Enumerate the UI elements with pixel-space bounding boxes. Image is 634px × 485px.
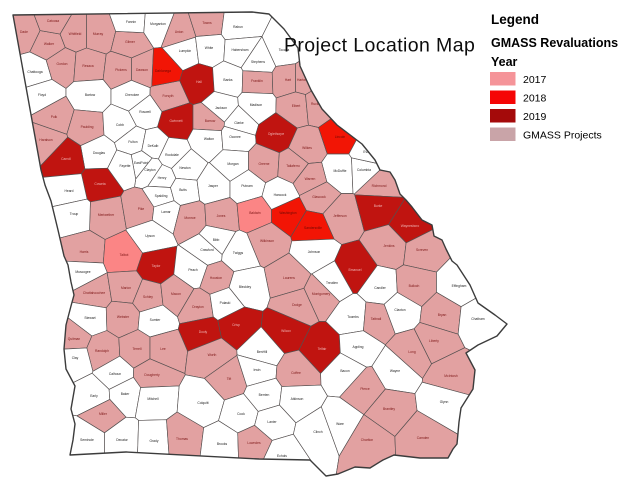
svg-text:Montgomery: Montgomery xyxy=(312,292,331,296)
svg-text:Peach: Peach xyxy=(188,268,198,272)
svg-text:Grady: Grady xyxy=(150,439,159,443)
svg-text:Miller: Miller xyxy=(99,412,108,416)
svg-text:Meriwether: Meriwether xyxy=(98,213,115,217)
svg-text:2017: 2017 xyxy=(523,74,547,86)
svg-text:Clay: Clay xyxy=(72,356,79,360)
svg-text:Jones: Jones xyxy=(217,214,226,218)
svg-text:Lowndes: Lowndes xyxy=(247,441,261,445)
svg-text:Sumter: Sumter xyxy=(150,318,162,322)
svg-text:Greene: Greene xyxy=(259,162,270,166)
svg-text:Webster: Webster xyxy=(117,315,130,319)
svg-text:Washington: Washington xyxy=(279,211,296,215)
svg-text:Gordon: Gordon xyxy=(57,62,68,66)
svg-text:Resaca: Resaca xyxy=(82,64,93,68)
svg-text:Floyd: Floyd xyxy=(38,93,46,97)
svg-text:Lee: Lee xyxy=(160,347,166,351)
svg-text:Monroe: Monroe xyxy=(184,216,195,220)
svg-text:Fannin: Fannin xyxy=(126,20,136,24)
svg-text:Liberty: Liberty xyxy=(429,339,439,343)
svg-text:Jackson: Jackson xyxy=(215,106,227,110)
svg-text:Camden: Camden xyxy=(417,436,430,440)
svg-text:BenHill: BenHill xyxy=(257,350,268,354)
svg-text:White: White xyxy=(205,46,214,50)
svg-text:Laurens: Laurens xyxy=(283,276,295,280)
svg-text:Roswell: Roswell xyxy=(139,110,151,114)
svg-text:Irwin: Irwin xyxy=(254,368,261,372)
svg-text:Lincoln: Lincoln xyxy=(335,135,346,139)
svg-text:Morganton: Morganton xyxy=(150,22,166,26)
svg-text:Madison: Madison xyxy=(250,103,263,107)
svg-text:Franklin: Franklin xyxy=(251,79,263,83)
svg-text:Carroll: Carroll xyxy=(61,157,71,161)
svg-text:Troup: Troup xyxy=(70,212,79,216)
svg-text:McDuffie: McDuffie xyxy=(334,169,347,173)
svg-text:Coweta: Coweta xyxy=(94,182,105,186)
svg-text:Clarke: Clarke xyxy=(234,121,244,125)
svg-text:Walton: Walton xyxy=(204,137,214,141)
svg-text:Calhoun: Calhoun xyxy=(109,372,121,376)
svg-text:Bacon: Bacon xyxy=(340,369,350,373)
svg-text:Walker: Walker xyxy=(44,42,55,46)
svg-text:Pickens: Pickens xyxy=(115,68,127,72)
svg-text:Morgan: Morgan xyxy=(227,162,238,166)
svg-text:Randolph: Randolph xyxy=(95,349,109,353)
svg-text:Baker: Baker xyxy=(121,392,131,396)
svg-text:Legend: Legend xyxy=(491,12,539,27)
svg-text:Polk: Polk xyxy=(51,115,58,119)
svg-text:Glynn: Glynn xyxy=(440,400,449,404)
svg-text:Candler: Candler xyxy=(374,286,386,290)
svg-text:Tattnall: Tattnall xyxy=(371,317,382,321)
svg-text:Cobb: Cobb xyxy=(116,123,124,127)
svg-text:Glascock: Glascock xyxy=(312,195,326,199)
svg-text:Pulaski: Pulaski xyxy=(220,301,231,305)
svg-text:Paulding: Paulding xyxy=(81,125,94,129)
svg-text:Johnson: Johnson xyxy=(308,250,321,254)
svg-text:Oglethorpe: Oglethorpe xyxy=(268,132,284,136)
svg-text:Stephens: Stephens xyxy=(251,60,265,64)
svg-text:Habersham: Habersham xyxy=(231,48,248,52)
svg-text:Murray: Murray xyxy=(93,32,104,36)
svg-text:Muscogee: Muscogee xyxy=(75,270,90,274)
svg-text:Bleckley: Bleckley xyxy=(239,285,252,289)
svg-text:Early: Early xyxy=(90,394,98,398)
svg-text:Terrell: Terrell xyxy=(133,347,142,351)
svg-text:McIntosh: McIntosh xyxy=(444,374,458,378)
svg-text:Richmond: Richmond xyxy=(372,184,387,188)
svg-text:Hancock: Hancock xyxy=(274,193,287,197)
svg-text:Dodge: Dodge xyxy=(292,303,302,307)
svg-text:Echols: Echols xyxy=(277,454,287,458)
svg-text:Sandersville: Sandersville xyxy=(304,226,322,230)
svg-text:Jefferson: Jefferson xyxy=(333,214,347,218)
svg-text:Tift: Tift xyxy=(227,377,232,381)
svg-text:Bulloch: Bulloch xyxy=(409,284,420,288)
svg-text:Coffee: Coffee xyxy=(291,371,301,375)
svg-text:2019: 2019 xyxy=(523,111,547,123)
svg-text:Fayette: Fayette xyxy=(120,164,131,168)
svg-text:Wayne: Wayne xyxy=(390,369,400,373)
svg-text:Thomas: Thomas xyxy=(176,437,188,441)
svg-text:Cherokee: Cherokee xyxy=(125,93,139,97)
svg-text:Forsyth: Forsyth xyxy=(163,94,174,98)
svg-text:Toombs: Toombs xyxy=(347,315,359,319)
svg-text:Towns: Towns xyxy=(202,21,212,25)
svg-text:GMASS Projects: GMASS Projects xyxy=(523,130,602,142)
svg-text:Bartow: Bartow xyxy=(85,93,96,97)
svg-text:Wilcox: Wilcox xyxy=(281,329,291,333)
svg-text:Chattooga: Chattooga xyxy=(27,70,42,74)
svg-text:Spalding: Spalding xyxy=(155,194,168,198)
svg-text:Crisp: Crisp xyxy=(232,323,240,327)
svg-text:Baldwin: Baldwin xyxy=(249,211,261,215)
svg-text:Quitman: Quitman xyxy=(68,337,81,341)
svg-text:Decatur: Decatur xyxy=(116,438,128,442)
svg-text:Macon: Macon xyxy=(171,292,181,296)
svg-text:Jasper: Jasper xyxy=(208,184,219,188)
svg-text:Charlton: Charlton xyxy=(361,438,374,442)
svg-text:Colquitt: Colquitt xyxy=(197,401,208,405)
svg-text:2018: 2018 xyxy=(523,93,547,105)
svg-text:Long: Long xyxy=(408,350,416,354)
svg-text:Worth: Worth xyxy=(208,353,217,357)
svg-text:Lanier: Lanier xyxy=(267,420,277,424)
svg-text:Taylor: Taylor xyxy=(152,264,162,268)
svg-text:Taliaferro: Taliaferro xyxy=(286,164,300,168)
svg-text:Lamar: Lamar xyxy=(161,210,171,214)
svg-text:Dahlonega: Dahlonega xyxy=(155,69,171,73)
svg-text:Newton: Newton xyxy=(179,166,190,170)
svg-text:Project Location Map: Project Location Map xyxy=(284,35,475,57)
svg-text:Drayton: Drayton xyxy=(192,305,204,309)
svg-text:Warren: Warren xyxy=(305,177,316,181)
svg-text:Brantley: Brantley xyxy=(383,407,395,411)
svg-text:Gwinnett: Gwinnett xyxy=(169,119,182,123)
svg-text:Dade: Dade xyxy=(20,30,28,34)
svg-text:Harris: Harris xyxy=(80,250,89,254)
svg-text:Rockdale: Rockdale xyxy=(165,153,179,157)
svg-text:Pierce: Pierce xyxy=(360,387,370,391)
svg-text:Mitchell: Mitchell xyxy=(147,397,158,401)
svg-text:Dooly: Dooly xyxy=(199,330,208,334)
svg-text:Jenkins: Jenkins xyxy=(383,244,395,248)
svg-text:Year: Year xyxy=(491,55,518,69)
svg-text:Burke: Burke xyxy=(374,204,383,208)
svg-text:Bibb: Bibb xyxy=(213,238,220,242)
svg-text:Columbia: Columbia xyxy=(357,168,371,172)
svg-text:Wilkes: Wilkes xyxy=(302,146,312,150)
svg-text:Upson: Upson xyxy=(145,234,155,238)
svg-text:Houston: Houston xyxy=(210,276,222,280)
svg-text:Marion: Marion xyxy=(121,286,131,290)
svg-text:Dougherty: Dougherty xyxy=(144,373,160,377)
svg-text:Crawford: Crawford xyxy=(200,248,214,252)
svg-text:Talbot: Talbot xyxy=(120,253,129,257)
svg-text:Henry: Henry xyxy=(158,176,167,180)
svg-text:Appling: Appling xyxy=(353,345,364,349)
svg-text:Clayton: Clayton xyxy=(144,168,155,172)
svg-text:Catoosa: Catoosa xyxy=(47,19,59,23)
svg-text:Screven: Screven xyxy=(416,248,428,252)
svg-text:Cook: Cook xyxy=(237,412,245,416)
svg-text:Hart: Hart xyxy=(285,78,291,82)
svg-text:Rabun: Rabun xyxy=(233,25,243,29)
svg-text:Clinch: Clinch xyxy=(313,430,322,434)
svg-text:Bryan: Bryan xyxy=(438,313,447,317)
svg-text:Oconee: Oconee xyxy=(229,135,241,139)
svg-text:Treutlen: Treutlen xyxy=(326,281,338,285)
svg-text:Claxton: Claxton xyxy=(394,308,405,312)
svg-text:Douglas: Douglas xyxy=(93,151,105,155)
svg-text:Pike: Pike xyxy=(138,207,145,211)
svg-text:Emanuel: Emanuel xyxy=(348,268,361,272)
svg-text:Butts: Butts xyxy=(179,188,187,192)
svg-text:Wilkinson: Wilkinson xyxy=(260,239,274,243)
svg-text:Gilmer: Gilmer xyxy=(125,40,136,44)
svg-text:Elbert: Elbert xyxy=(292,104,301,108)
svg-text:Lumpkin: Lumpkin xyxy=(179,49,192,53)
svg-text:Fulton: Fulton xyxy=(128,140,137,144)
svg-text:Schley: Schley xyxy=(143,295,153,299)
svg-text:Ware: Ware xyxy=(336,422,344,426)
svg-text:Hall: Hall xyxy=(196,80,202,84)
svg-text:DeKalb: DeKalb xyxy=(148,144,159,148)
svg-text:Chatham: Chatham xyxy=(471,317,485,321)
svg-text:Barrow: Barrow xyxy=(205,119,216,123)
svg-text:Heard: Heard xyxy=(65,189,74,193)
svg-text:Dawson: Dawson xyxy=(136,68,148,72)
svg-text:Banks: Banks xyxy=(223,78,233,82)
svg-text:Seminole: Seminole xyxy=(80,438,94,442)
svg-text:Twiggs: Twiggs xyxy=(233,251,244,255)
svg-text:Berrien: Berrien xyxy=(259,393,270,397)
svg-text:Putnam: Putnam xyxy=(241,184,253,188)
svg-text:Telfair: Telfair xyxy=(318,347,328,351)
svg-text:Whitfield: Whitfield xyxy=(69,32,82,36)
svg-text:EastPoint: EastPoint xyxy=(134,161,148,165)
svg-text:Effingham: Effingham xyxy=(452,284,467,288)
svg-text:Chattahoochee: Chattahoochee xyxy=(83,291,106,295)
svg-text:Haralson: Haralson xyxy=(39,138,52,142)
svg-text:Union: Union xyxy=(175,30,184,34)
svg-text:Brooks: Brooks xyxy=(217,442,228,446)
svg-text:Waynesboro: Waynesboro xyxy=(401,224,420,228)
svg-text:Atkinson: Atkinson xyxy=(291,397,304,401)
svg-text:Stewart: Stewart xyxy=(84,316,95,320)
svg-text:GMASS Revaluations: GMASS Revaluations xyxy=(491,36,618,50)
